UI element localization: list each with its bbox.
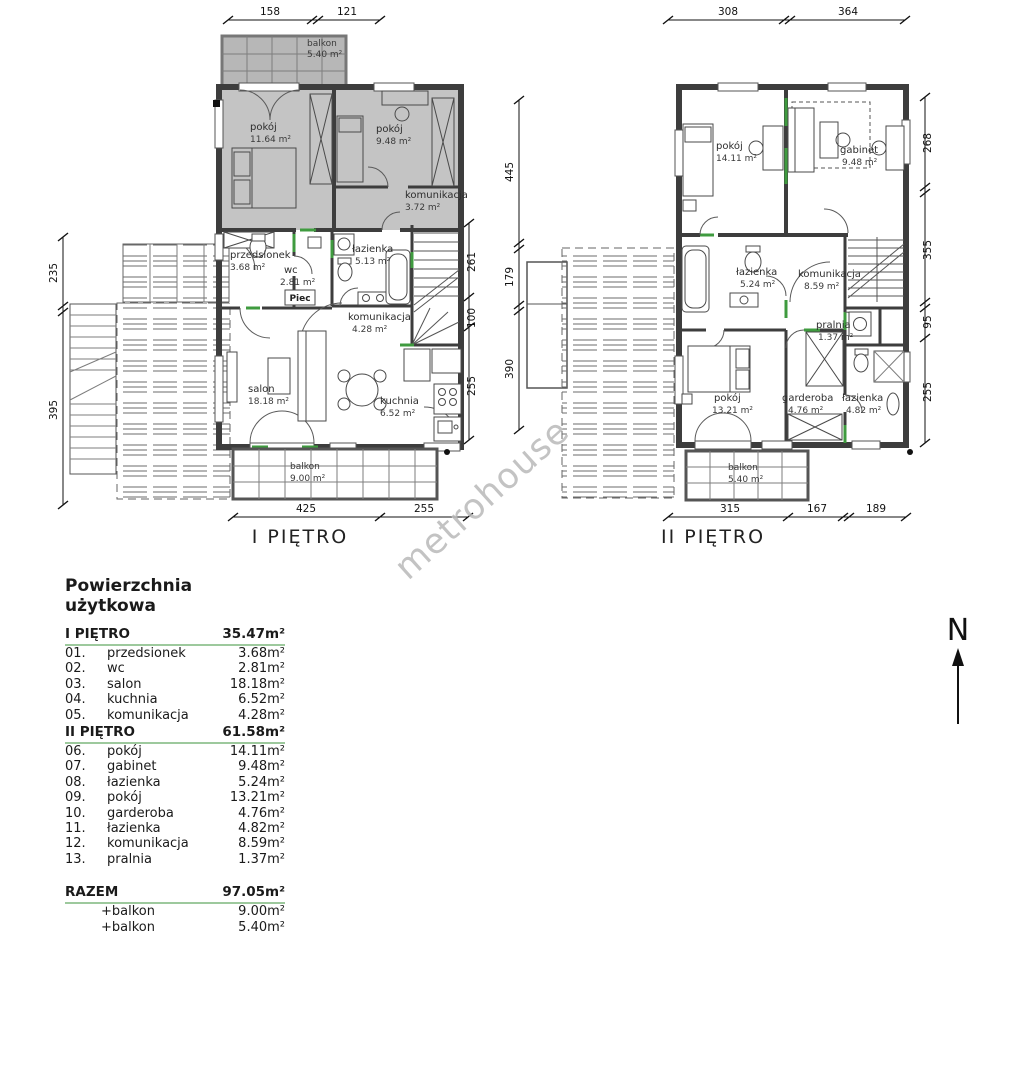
room-area-komunikacja1: 3.72 m² [405,203,441,213]
legend-row-area: 6.52m² [238,692,285,707]
plan1-dim-top-1: 158 [260,6,280,18]
room-label-wc: wc [284,265,298,276]
legend-row-name: łazienka [107,821,238,836]
legend-row-area: 4.76m² [238,806,285,821]
legend-row-name: pralnia [107,852,238,867]
plan2-dim-top-2: 364 [838,6,858,18]
legend-section-total: 35.47m² [222,626,285,642]
room-area-salon: 18.18 m² [248,397,289,407]
legend-row: 13. pralnia 1.37m² [65,852,285,867]
plan1-dim-right-3: 255 [466,376,478,396]
legend-row: 04. kuchnia 6.52m² [65,692,285,707]
legend-row-area: 2.81m² [238,661,285,676]
legend-row-num: 08. [65,775,107,790]
room-label-p2-komunikacja: komunikacja [798,269,861,280]
room-area-garderoba: 4.76 m² [788,406,824,416]
room-label-lazienka1: łazienka [352,244,393,255]
room-label-garderoba: garderoba [782,393,833,404]
room-area-przedsionek: 3.68 m² [230,263,266,273]
legend-row-area: 8.59m² [238,836,285,851]
legend-row: 07. gabinet 9.48m² [65,759,285,774]
north-indicator: N [935,616,981,730]
plan1-dim-left-1: 235 [48,263,60,283]
legend-row-num: 02. [65,661,107,676]
room-label-gabinet: gabinet [840,145,878,156]
room-area-p2-balkon: 5.40 m² [728,475,764,485]
legend-row-area: 4.82m² [238,821,285,836]
legend-section-label: II PIĘTRO [65,724,135,740]
legend-row-name: salon [107,677,230,692]
legend-section-floor1: I PIĘTRO 35.47m² [65,625,285,646]
legend-row-name: pokój [107,744,230,759]
legend-row-name: gabinet [107,759,238,774]
plan1-dim-top-2: 121 [337,6,357,18]
room-label-komunikacja2: komunikacja [348,312,411,323]
legend-section-total: 97.05m² [222,884,285,900]
room-label-komunikacja1: komunikacja [405,190,468,201]
legend-row-num: 05. [65,708,107,723]
legend-row-num: 07. [65,759,107,774]
plan2-title: II PIĘTRO [661,526,765,548]
room-area-lazienka-gora: 5.24 m² [740,280,776,290]
legend-extra-name: +balkon [101,904,238,919]
plan2-dim-bottom-1: 315 [720,503,740,515]
legend-row-name: pokój [107,790,230,805]
plan2-dim-left-1: 445 [504,162,516,182]
room-area-p2-pokoj2: 13.21 m² [712,406,753,416]
plan1-dim-left-2: 395 [48,400,60,420]
legend-row-area: 9.48m² [238,759,285,774]
legend-row-num: 03. [65,677,107,692]
legend-row: 08. łazienka 5.24m² [65,775,285,790]
room-label-p2-balkon: balkon [728,463,758,473]
room-label-salon: salon [248,384,275,395]
legend-section-total: RAZEM 97.05m² [65,883,285,904]
legend-extra-area: 5.40m² [238,920,285,935]
room-label-lazienka-gora: łazienka [736,267,777,278]
legend-row-name: wc [107,661,238,676]
legend-row-area: 14.11m² [230,744,285,759]
plan1-dim-bottom-1: 425 [296,503,316,515]
plan2-dim-left-3: 390 [504,359,516,379]
room-label-kuchnia: kuchnia [380,396,419,407]
room-label-pokoj2: pokój [376,123,403,135]
legend-row-num: 06. [65,744,107,759]
room-label-balkon-bottom: balkon [290,462,320,472]
legend-title: Powierzchnia użytkowa [65,576,285,616]
legend-row-num: 12. [65,836,107,851]
room-label-balkon-top: balkon [307,39,337,49]
room-label-pokoj1: pokój [250,121,277,133]
room-area-kuchnia: 6.52 m² [380,409,416,419]
legend-row-num: 09. [65,790,107,805]
plan2-dim-top-1: 308 [718,6,738,18]
legend-row-num: 13. [65,852,107,867]
legend-row: 11. łazienka 4.82m² [65,821,285,836]
room-label-przedsionek: przedsionek [230,250,291,261]
legend-row-name: komunikacja [107,708,238,723]
legend-row-area: 1.37m² [238,852,285,867]
floorplan-page: 158 121 balkon 5.40 m² 235 395 [0,0,1023,1080]
plan2-dim-left-2: 179 [504,267,516,287]
legend-row-num: 10. [65,806,107,821]
north-arrow-icon [935,646,981,726]
room-area-gabinet: 9.48 m² [842,158,878,168]
plan2-dim-bottom-2: 167 [807,503,827,515]
room-area-pokoj1: 11.64 m² [250,135,291,145]
plan2-dim-right-2: 355 [922,240,934,260]
legend-row-num: 11. [65,821,107,836]
room-label-piec: Piec [289,294,310,304]
legend-section-label: RAZEM [65,884,118,900]
plan2-dim-right-1: 268 [922,133,934,153]
room-area-wc: 2.81 m² [280,278,316,288]
plan2-drawing: 308 364 445 179 390 [504,6,934,548]
room-area-lazienka-dol: 4.82 m² [846,406,882,416]
legend-row-area: 18.18m² [230,677,285,692]
legend-section-floor2: II PIĘTRO 61.58m² [65,723,285,744]
room-area-balkon-top: 5.40 m² [307,50,343,60]
legend-row-name: komunikacja [107,836,238,851]
legend: Powierzchnia użytkowa I PIĘTRO 35.47m² 0… [65,576,285,935]
room-area-p2-komunikacja: 8.59 m² [804,282,840,292]
room-area-lazienka1: 5.13 m² [355,257,391,267]
room-label-p2-pokoj2: pokój [714,392,741,404]
legend-row-name: łazienka [107,775,238,790]
legend-row: 05. komunikacja 4.28m² [65,708,285,723]
legend-row: 01. przedsionek 3.68m² [65,646,285,661]
plan1-dim-bottom-2: 255 [414,503,434,515]
legend-extra-area: 9.00m² [238,904,285,919]
room-area-komunikacja2: 4.28 m² [352,325,388,335]
legend-row: 03. salon 18.18m² [65,677,285,692]
legend-section-label: I PIĘTRO [65,626,130,642]
legend-extra-row: +balkon 5.40m² [65,920,285,935]
north-label: N [935,616,981,646]
room-area-pokoj2: 9.48 m² [376,137,412,147]
room-area-balkon-bottom: 9.00 m² [290,474,326,484]
plan1-dim-right-2: 100 [466,308,478,328]
legend-row-area: 4.28m² [238,708,285,723]
plan1-drawing: 158 121 balkon 5.40 m² 235 395 [48,6,478,548]
room-label-pralnia: pralnia [816,320,851,331]
room-label-p2-pokoj1: pokój [716,140,743,152]
plan2-dim-right-3: 95 [922,315,934,328]
legend-row-num: 04. [65,692,107,707]
room-label-lazienka-dol: łazienka [842,393,883,404]
legend-row-area: 5.24m² [238,775,285,790]
legend-row-num: 01. [65,646,107,661]
legend-row-name: garderoba [107,806,238,821]
legend-row: 06. pokój 14.11m² [65,744,285,759]
legend-row: 12. komunikacja 8.59m² [65,836,285,851]
legend-row-name: przedsionek [107,646,238,661]
legend-row: 09. pokój 13.21m² [65,790,285,805]
legend-extra-row: +balkon 9.00m² [65,904,285,919]
plan1-title: I PIĘTRO [252,526,348,548]
legend-row: 02. wc 2.81m² [65,661,285,676]
plan2-dim-right-4: 255 [922,382,934,402]
room-area-pralnia: 1.37 m² [818,333,854,343]
legend-row-area: 3.68m² [238,646,285,661]
plan2-dim-bottom-3: 189 [866,503,886,515]
legend-spacer [65,867,285,883]
plan1-dim-right-1: 261 [466,252,478,272]
legend-section-total: 61.58m² [222,724,285,740]
legend-row-area: 13.21m² [230,790,285,805]
legend-row-name: kuchnia [107,692,238,707]
legend-row: 10. garderoba 4.76m² [65,806,285,821]
legend-extra-name: +balkon [101,920,238,935]
room-area-p2-pokoj1: 14.11 m² [716,154,757,164]
